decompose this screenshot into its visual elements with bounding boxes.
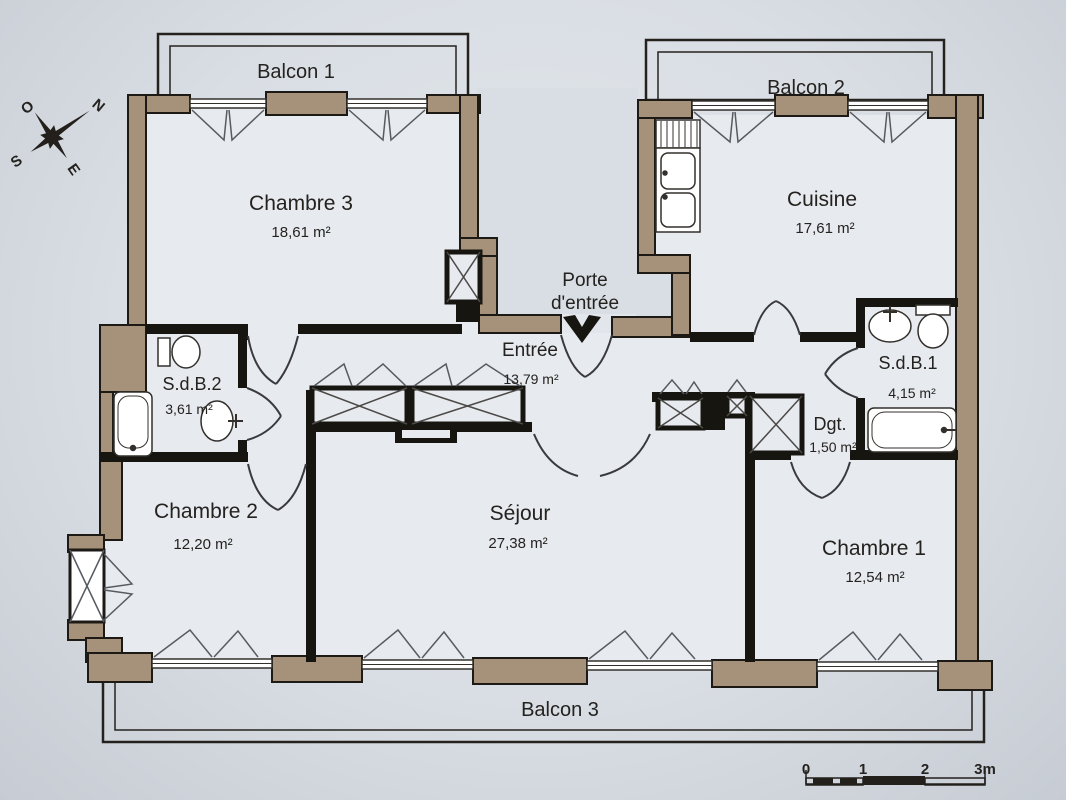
chambre1-area: 12,54 m² [845,569,904,586]
toilet-sdb2 [158,336,200,368]
cuisine-area: 17,61 m² [795,220,854,237]
sdb1-area: 4,15 m² [888,385,936,401]
compass-s: S [8,152,26,172]
porte-entree-line1: Porte [562,270,607,291]
scale-bar: 0 1 2 3m [802,761,996,785]
sejour-area: 27,38 m² [488,535,547,552]
balcony-3-label: Balcon 3 [521,699,599,721]
sdb2-area: 3,61 m² [165,401,213,417]
compass-o: O [18,97,38,118]
kitchen-sink [656,120,700,232]
chambre3-area: 18,61 m² [271,224,330,241]
toilet-sdb1 [916,305,950,348]
dgt-name: Dgt. [813,414,846,434]
compass-rose: N O S E [8,86,108,179]
sdb2-name: S.d.B.2 [162,374,221,394]
bathtub-sdb2 [114,392,152,456]
balcony-1-label: Balcon 1 [257,61,335,83]
scale-1: 1 [859,761,867,778]
chambre3-name: Chambre 3 [249,192,353,215]
compass-e: E [64,161,84,179]
floor-plan: N O S E 0 1 2 3m Balcon 1 Balcon 2 Balco… [0,0,1066,800]
balcony-2-label: Balcon 2 [767,77,845,99]
floor-plan-svg: N O S E 0 1 2 3m Balcon 1 Balcon 2 Balco… [0,0,1066,800]
porte-entree-line2: d'entrée [551,293,619,314]
chambre2-area: 12,20 m² [173,536,232,553]
bathtub-sdb1 [868,408,956,452]
entree-name: Entrée [502,340,558,361]
chambre1-name: Chambre 1 [822,537,926,560]
scale-2: 2 [921,761,929,778]
entree-area: 13,79 m² [503,371,559,387]
chambre2-name: Chambre 2 [154,500,258,523]
dgt-area: 1,50 m² [809,439,857,455]
cuisine-name: Cuisine [787,188,857,211]
compass-n: N [89,96,108,116]
sejour-name: Séjour [490,502,551,525]
sdb1-name: S.d.B.1 [878,353,937,373]
